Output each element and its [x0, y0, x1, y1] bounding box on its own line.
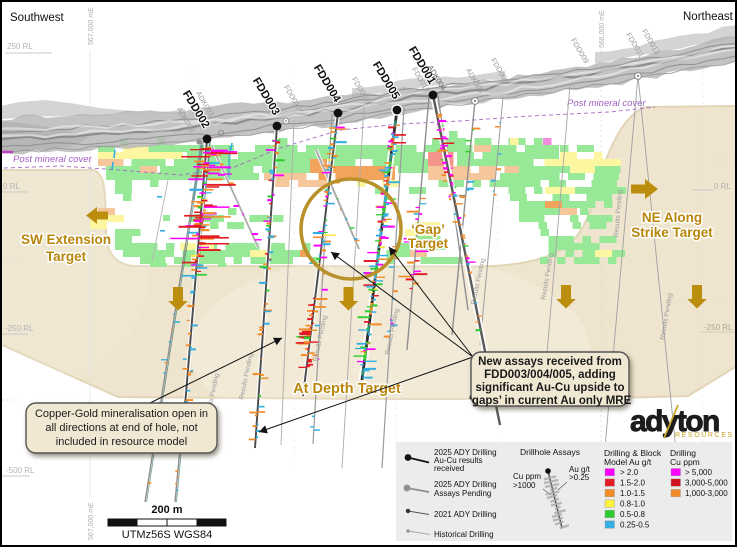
svg-text:UTMz56S WGS84: UTMz56S WGS84	[122, 529, 212, 541]
svg-text:Model Au g/t: Model Au g/t	[604, 457, 652, 467]
svg-text:Post mineral cover: Post mineral cover	[13, 154, 93, 165]
svg-text:Assays Pending: Assays Pending	[434, 489, 491, 498]
svg-text:>0.25: >0.25	[569, 473, 590, 482]
svg-text:0.8-1.0: 0.8-1.0	[620, 500, 645, 509]
svg-text:-500 RL: -500 RL	[6, 466, 35, 475]
svg-text:> 2.0: > 2.0	[620, 468, 639, 477]
svg-text:Post mineral cover: Post mineral cover	[567, 98, 647, 109]
svg-text:Southwest: Southwest	[10, 12, 65, 24]
svg-text:0 RL: 0 RL	[3, 182, 20, 191]
svg-text:Historical Drilling: Historical Drilling	[434, 530, 494, 539]
svg-text:Cu ppm: Cu ppm	[670, 457, 700, 467]
svg-text:NE Along: NE Along	[642, 210, 702, 225]
svg-text:FDD003/004/005, adding: FDD003/004/005, adding	[484, 369, 616, 381]
svg-text:1.5-2.0: 1.5-2.0	[620, 479, 645, 488]
svg-text:RESOURCES: RESOURCES	[675, 432, 734, 439]
svg-text:Target: Target	[408, 236, 449, 251]
svg-text:2021 ADY Drilling: 2021 ADY Drilling	[434, 510, 497, 519]
svg-text:received: received	[434, 464, 464, 473]
svg-text:included in resource model: included in resource model	[56, 436, 187, 448]
svg-text:Drillhole Assays: Drillhole Assays	[520, 447, 580, 457]
svg-text:Copper-Gold mineralisation ope: Copper-Gold mineralisation open in	[35, 408, 208, 420]
svg-text:1.0-1.5: 1.0-1.5	[620, 489, 645, 498]
svg-text:-250 RL: -250 RL	[5, 324, 34, 333]
svg-text:250 RL: 250 RL	[7, 42, 33, 51]
svg-text:> 5,000: > 5,000	[685, 468, 712, 477]
svg-text:‘gaps’ in current Au only MRE: ‘gaps’ in current Au only MRE	[469, 395, 632, 407]
svg-text:Strike Target: Strike Target	[631, 225, 713, 240]
svg-text:567,000 mE: 567,000 mE	[88, 502, 95, 540]
svg-text:567,000 mE: 567,000 mE	[88, 7, 95, 45]
svg-text:Target: Target	[46, 249, 87, 264]
svg-text:0.25-0.5: 0.25-0.5	[620, 520, 650, 529]
svg-text:0 RL: 0 RL	[714, 182, 731, 191]
svg-text:0.5-0.8: 0.5-0.8	[620, 510, 645, 519]
svg-text:significant Au-Cu upside to: significant Au-Cu upside to	[475, 382, 624, 394]
svg-text:-250 RL: -250 RL	[704, 323, 733, 332]
svg-text:2025 ADY Drilling: 2025 ADY Drilling	[434, 480, 497, 489]
svg-text:1,000-3,000: 1,000-3,000	[685, 489, 728, 498]
svg-text:200 m: 200 m	[151, 504, 182, 516]
svg-text:Northeast: Northeast	[683, 11, 734, 23]
svg-text:Cu ppm: Cu ppm	[513, 472, 541, 481]
svg-text:all directions at end of hole,: all directions at end of hole, not	[45, 422, 197, 434]
svg-text:New assays received from: New assays received from	[478, 356, 622, 368]
svg-text:At Depth Target: At Depth Target	[293, 381, 401, 397]
svg-text:‘Gap’: ‘Gap’	[411, 222, 445, 237]
svg-text:3,000-5,000: 3,000-5,000	[685, 479, 728, 488]
svg-text:568,000 mE: 568,000 mE	[599, 10, 606, 48]
svg-text:>1000: >1000	[513, 481, 536, 490]
svg-text:SW Extension: SW Extension	[21, 232, 111, 247]
